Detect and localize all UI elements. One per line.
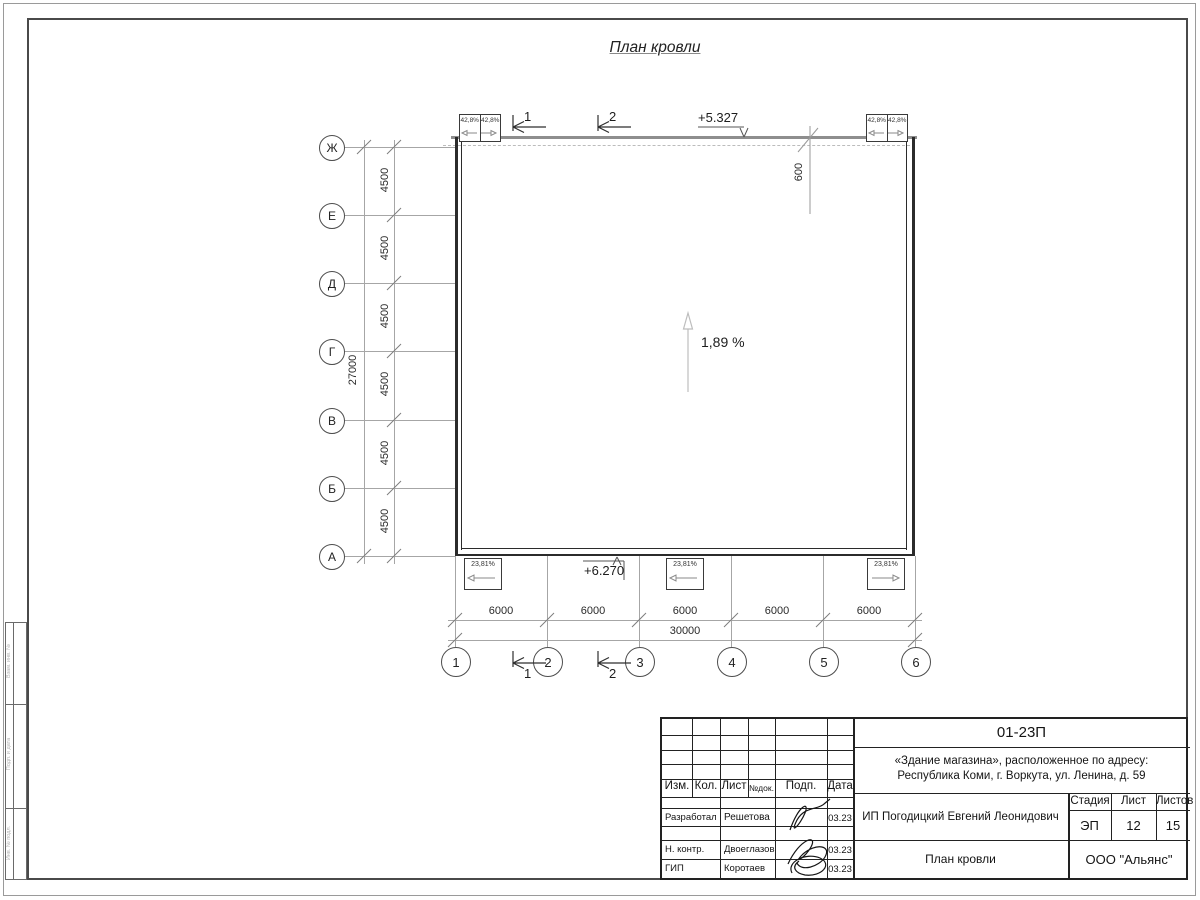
axis-line — [343, 215, 455, 216]
axis-bubble-letter: Г — [319, 339, 345, 365]
tb-col-izm: Изм. — [662, 780, 692, 792]
wall-left-inner — [461, 141, 462, 550]
axis-label: 5 — [820, 655, 827, 670]
axis-bubble-number: 6 — [901, 647, 931, 677]
section-mark-number: 1 — [524, 109, 531, 124]
axis-bubble-letter: В — [319, 408, 345, 434]
axis-bubble-number: 5 — [809, 647, 839, 677]
axis-bubble-letter: Ж — [319, 135, 345, 161]
section-mark-number: 2 — [609, 109, 616, 124]
tb-col-list: Лист — [720, 780, 748, 792]
tb-project-line2: Республика Коми, г. Воркута, ул. Ленина,… — [853, 770, 1190, 782]
tb-line — [662, 878, 853, 879]
tb-col-data: Дата — [827, 780, 853, 792]
axis-label: Ж — [326, 141, 337, 155]
tb-line — [662, 735, 853, 736]
axis-line — [343, 420, 455, 421]
dim-label: 6000 — [479, 605, 523, 617]
tb-sheet-label: Лист — [1111, 795, 1156, 807]
wall-right-inner — [906, 141, 907, 550]
axis-bubble-number: 1 — [441, 647, 471, 677]
slope-value: 23,81% — [868, 559, 904, 589]
dim-label: 4500 — [379, 226, 391, 270]
tb-stage-value: ЭП — [1068, 810, 1111, 840]
tb-line — [662, 859, 853, 860]
dim-label: 6000 — [847, 605, 891, 617]
axis-bubble-number: 2 — [533, 647, 563, 677]
axis-label: Г — [329, 345, 336, 359]
axis-bubble-letter: Е — [319, 203, 345, 229]
slope-box-top-right: 42,8% 42,8% — [866, 114, 908, 142]
wall-bottom-inner — [461, 548, 907, 549]
slope-direction-label: 1,89 % — [701, 334, 745, 350]
axis-label: 2 — [544, 655, 551, 670]
tb-name: Решетова — [724, 812, 770, 823]
dim-total-label: 27000 — [347, 345, 359, 395]
axis-line — [639, 556, 640, 647]
tb-date: 03.23 — [827, 813, 853, 824]
slope-value: 42,8% — [887, 115, 908, 141]
axis-bubble-letter: Д — [319, 271, 345, 297]
axis-line — [823, 556, 824, 647]
axis-label: Е — [328, 209, 336, 223]
dim-label: 6000 — [571, 605, 615, 617]
tb-line — [775, 719, 776, 878]
axis-line — [547, 556, 548, 647]
tb-col-kol: Кол. — [692, 780, 720, 792]
axis-label: Б — [328, 482, 336, 496]
slope-value: 23,81% — [667, 559, 703, 589]
tb-sheets-value: 15 — [1156, 810, 1190, 840]
tb-col-ndok: №док. — [748, 783, 775, 793]
tb-name: Коротаев — [724, 863, 765, 874]
tb-line — [853, 747, 1190, 748]
side-stamp-label: Подп. и дата — [6, 714, 12, 794]
tb-company: ООО "Альянс" — [1068, 840, 1190, 878]
side-stamp-label: Взам. инв. № — [6, 621, 12, 701]
slope-box-bottom: 23,81% — [464, 558, 502, 590]
tb-sheets-label: Листов — [1156, 795, 1190, 807]
axis-bubble-letter: А — [319, 544, 345, 570]
tb-line — [662, 826, 853, 827]
dim-label: 4500 — [379, 499, 391, 543]
dim-total-label: 30000 — [655, 625, 715, 637]
slope-value: 42,8% — [460, 115, 480, 141]
tb-document-code: 01-23П — [853, 724, 1190, 741]
tb-line — [662, 750, 853, 751]
tb-role: ГИП — [665, 863, 684, 874]
axis-label: 1 — [452, 655, 459, 670]
dim-label: 4500 — [379, 294, 391, 338]
slope-box-top-left: 42,8% 42,8% — [459, 114, 501, 142]
dim-label: 4500 — [379, 431, 391, 475]
axis-line — [343, 351, 455, 352]
title-block: Изм. Кол. Лист №док. Подп. Дата Разработ… — [660, 717, 1188, 880]
dim-line-6000 — [448, 620, 922, 621]
axis-bubble-letter: Б — [319, 476, 345, 502]
dim-label: 6000 — [755, 605, 799, 617]
tb-line — [662, 808, 853, 809]
axis-bubble-number: 4 — [717, 647, 747, 677]
axis-label: Д — [328, 277, 336, 291]
section-mark-number: 1 — [524, 666, 531, 681]
axis-line — [343, 147, 455, 148]
tb-name: Двоеглазов — [724, 844, 775, 855]
wall-right — [912, 137, 915, 556]
tb-date: 03.23 — [827, 845, 853, 856]
dim-label: 4500 — [379, 158, 391, 202]
slope-value: 42,8% — [867, 115, 887, 141]
dim-label: 4500 — [379, 362, 391, 406]
tb-line — [662, 764, 853, 765]
elevation-top-label: +5.327 — [698, 110, 738, 125]
axis-line — [915, 556, 916, 647]
section-mark-number: 2 — [609, 666, 616, 681]
wall-bottom — [455, 554, 915, 557]
tb-sheet-value: 12 — [1111, 810, 1156, 840]
axis-line — [343, 488, 455, 489]
axis-bubble-number: 3 — [625, 647, 655, 677]
axis-line — [731, 556, 732, 647]
wall-left — [455, 137, 458, 556]
slope-value: 23,81% — [465, 559, 501, 589]
tb-col-podp: Подп. — [775, 780, 827, 792]
tb-stage-label: Стадия — [1069, 795, 1111, 807]
dim-label: 6000 — [663, 605, 707, 617]
elevation-bottom-label: +6.270 — [584, 563, 624, 578]
slope-box-bottom: 23,81% — [867, 558, 905, 590]
dim-line-27000 — [364, 140, 365, 564]
tb-role: Разработал — [665, 812, 717, 823]
side-stamp-divider — [13, 623, 14, 879]
parapet-offset-label: 600 — [793, 157, 805, 187]
tb-date: 03.23 — [827, 864, 853, 875]
axis-label: В — [328, 414, 336, 428]
roof-dashed-line — [443, 145, 915, 146]
tb-drawing-title: План кровли — [853, 840, 1068, 878]
drawing-sheet: Взам. инв. № Подп. и дата Инв. № подл. П… — [0, 0, 1200, 900]
page-title: План кровли — [596, 39, 714, 57]
roof-top-edge — [451, 136, 917, 139]
tb-project-line1: «Здание магазина», расположенное по адре… — [853, 755, 1190, 767]
dim-line-30000 — [448, 640, 922, 641]
dim-line-4500 — [394, 140, 395, 564]
slope-box-bottom: 23,81% — [666, 558, 704, 590]
axis-label: А — [328, 550, 336, 564]
side-stamp-line — [6, 704, 26, 705]
axis-label: 3 — [636, 655, 643, 670]
tb-client: ИП Погодицкий Евгений Леонидович — [855, 793, 1066, 840]
axis-line — [343, 283, 455, 284]
axis-label: 6 — [912, 655, 919, 670]
side-stamp-label: Инв. № подл. — [6, 803, 12, 883]
axis-line — [455, 556, 456, 647]
tb-line — [662, 797, 853, 798]
tb-role: Н. контр. — [665, 844, 704, 855]
axis-line — [343, 556, 455, 557]
axis-label: 4 — [728, 655, 735, 670]
slope-value: 42,8% — [480, 115, 501, 141]
tb-line — [720, 719, 721, 878]
